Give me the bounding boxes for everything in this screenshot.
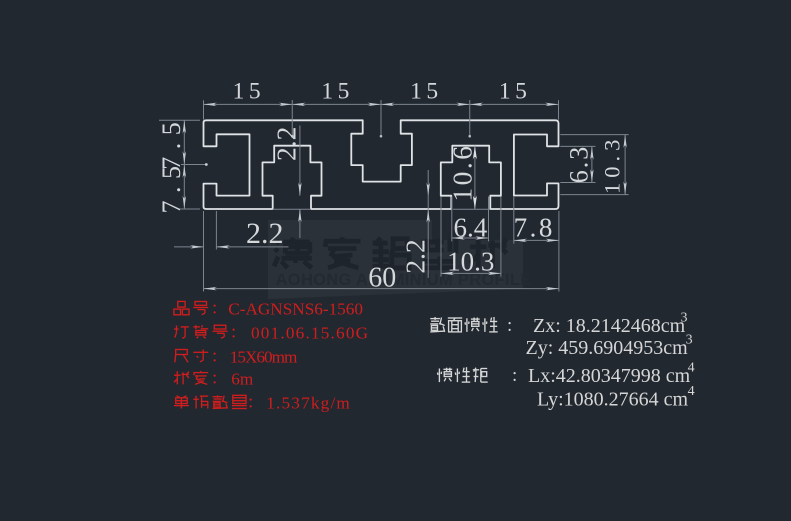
svg-text:7.5: 7.5 — [157, 159, 186, 214]
svg-text:4: 4 — [688, 384, 695, 399]
svg-text:15: 15 — [410, 79, 443, 105]
svg-text:001.06.15.60G: 001.06.15.60G — [251, 323, 369, 342]
svg-text:6.3: 6.3 — [565, 145, 594, 184]
svg-text:15: 15 — [233, 79, 266, 105]
svg-text:C-AGNSNS6-1560: C-AGNSNS6-1560 — [228, 300, 363, 319]
svg-text:4: 4 — [688, 361, 695, 376]
svg-text:10.3: 10.3 — [599, 135, 624, 194]
svg-text:3: 3 — [681, 311, 688, 326]
svg-text:2.2: 2.2 — [400, 239, 431, 273]
svg-text:60: 60 — [368, 263, 396, 294]
svg-text:7.8: 7.8 — [514, 212, 555, 242]
svg-text::: : — [507, 315, 512, 336]
svg-text:2.2: 2.2 — [270, 127, 301, 161]
svg-text::: : — [212, 298, 217, 319]
svg-text:6.4: 6.4 — [454, 212, 488, 242]
svg-text::: : — [512, 365, 517, 386]
svg-text:10.3: 10.3 — [447, 246, 494, 276]
svg-text:10.6: 10.6 — [446, 143, 477, 201]
svg-text::: : — [212, 368, 217, 389]
svg-text:15X60mm: 15X60mm — [230, 347, 298, 366]
svg-text:6m: 6m — [231, 370, 254, 389]
svg-text:Lx:42.80347998 cm: Lx:42.80347998 cm — [528, 365, 691, 387]
svg-text::: : — [248, 392, 253, 413]
svg-text:15: 15 — [499, 79, 532, 105]
svg-text:Zx: 18.2142468cm: Zx: 18.2142468cm — [533, 315, 686, 337]
svg-text:1.537kg/m: 1.537kg/m — [266, 394, 351, 413]
svg-text:Zy: 459.6904953cm: Zy: 459.6904953cm — [526, 337, 689, 359]
svg-text:2.2: 2.2 — [246, 217, 284, 250]
svg-text:3: 3 — [686, 333, 693, 348]
svg-text:15: 15 — [321, 79, 354, 105]
svg-text::: : — [212, 345, 217, 366]
svg-text:Ly:1080.27664 cm: Ly:1080.27664 cm — [537, 389, 689, 411]
svg-text::: : — [231, 321, 236, 342]
